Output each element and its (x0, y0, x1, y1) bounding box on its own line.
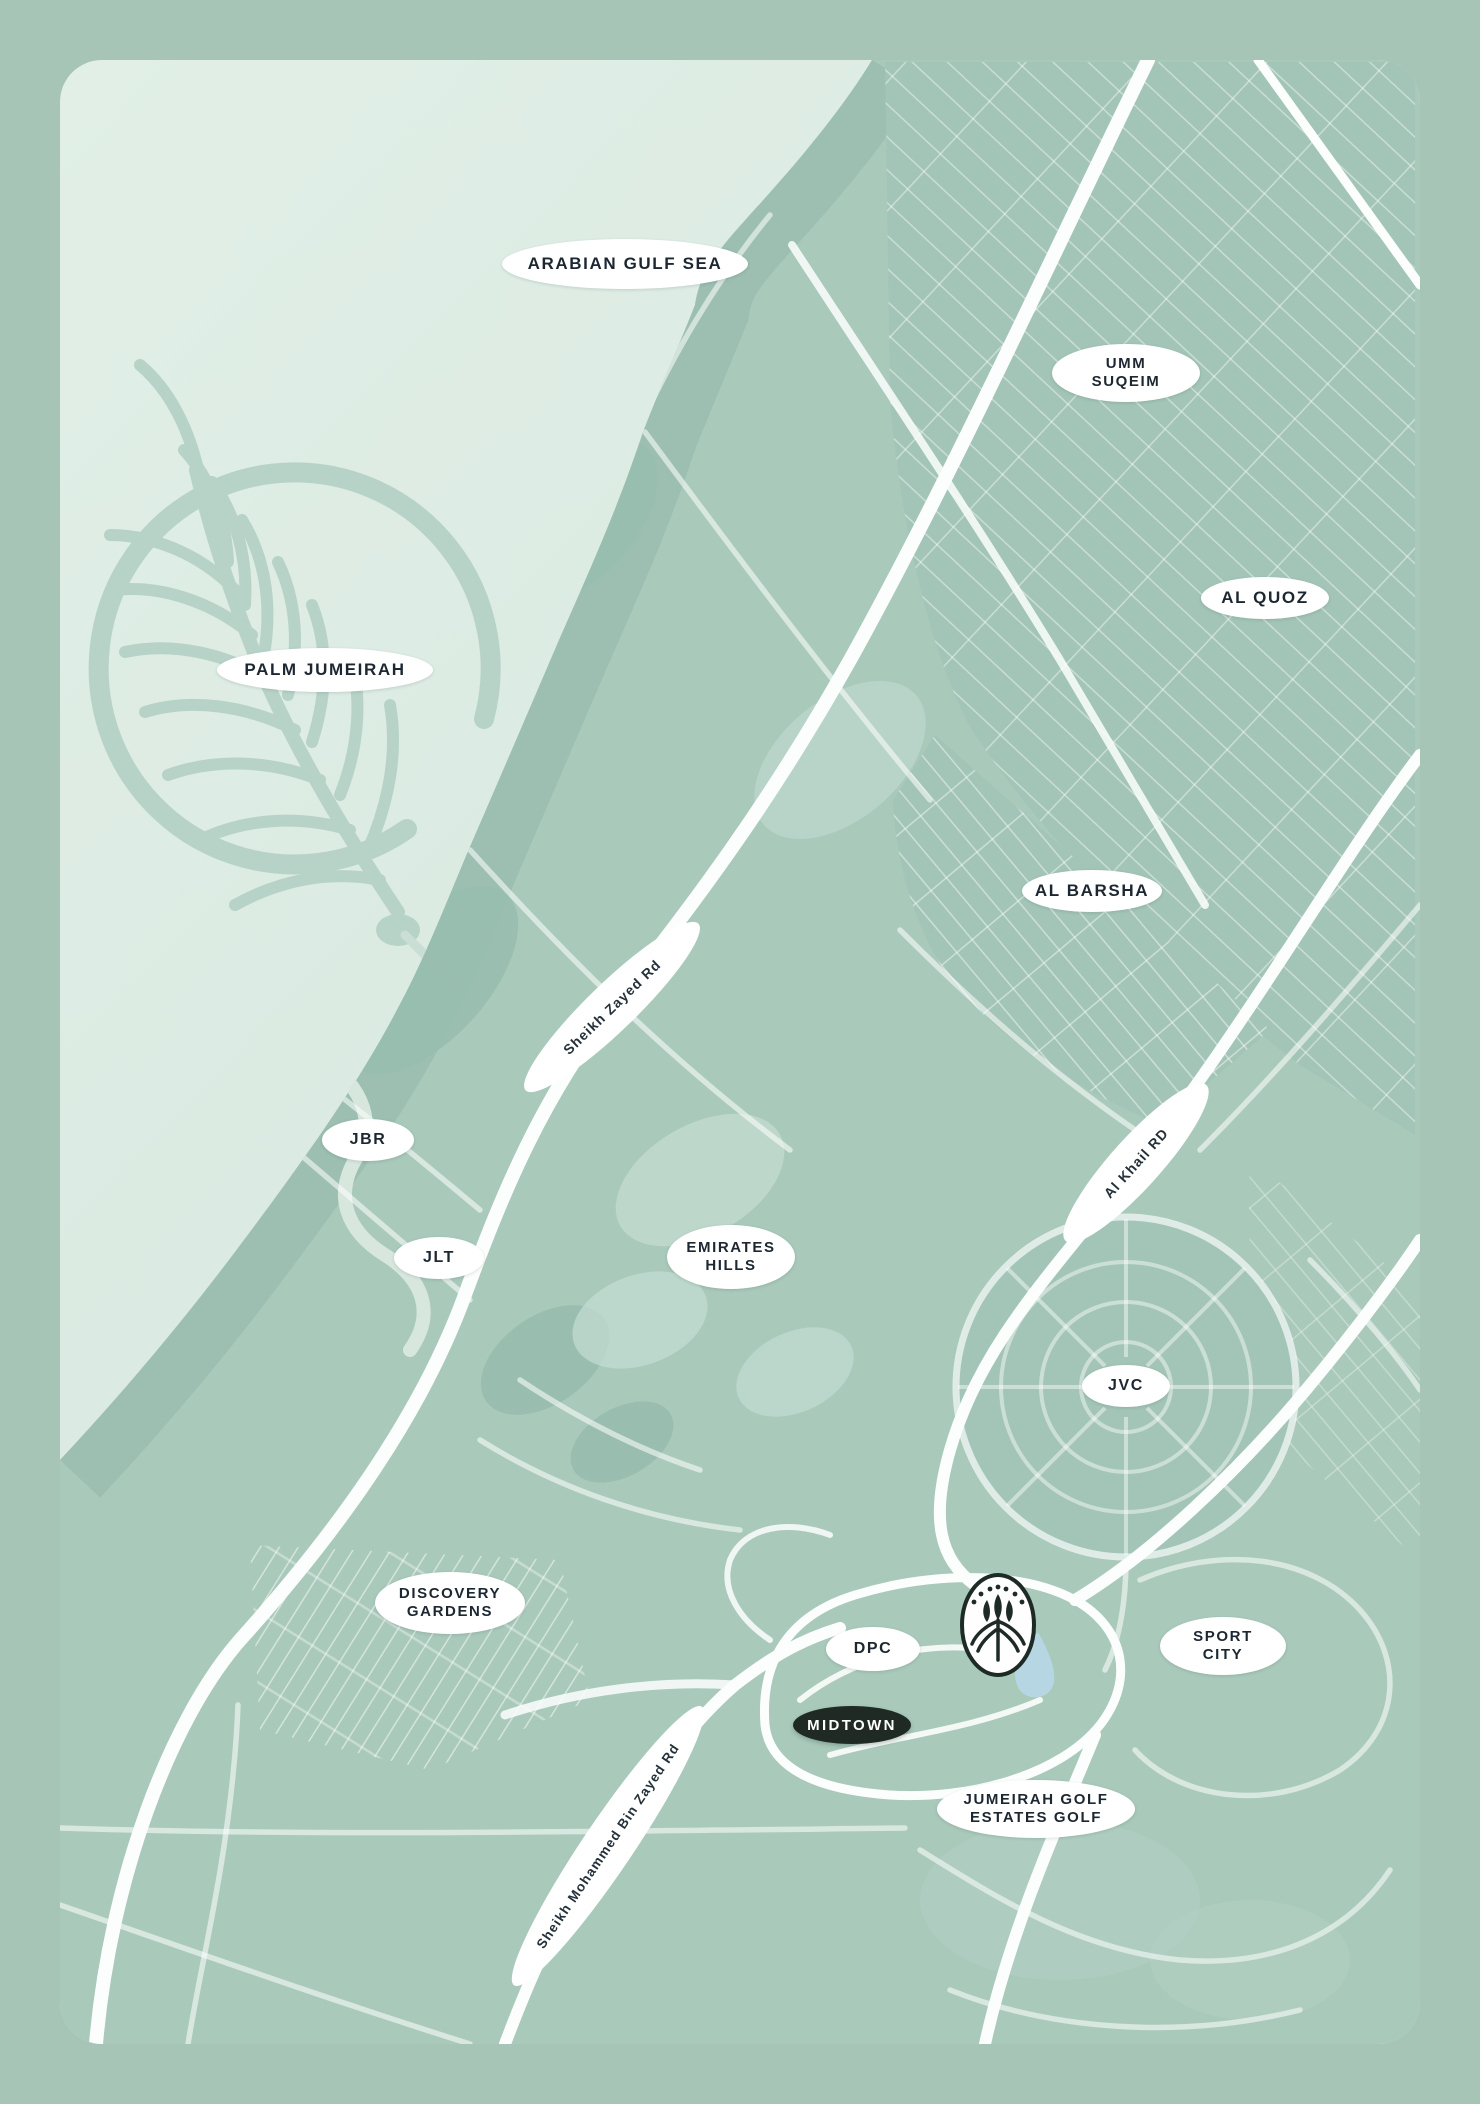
midtown-brand-emblem-icon (962, 1575, 1034, 1675)
jvc-radial-streets (954, 1215, 1298, 1559)
map-art (0, 0, 1480, 2104)
map-frame: ARABIAN GULF SEA UMM SUQEIM AL QUOZ PALM… (0, 0, 1480, 2104)
